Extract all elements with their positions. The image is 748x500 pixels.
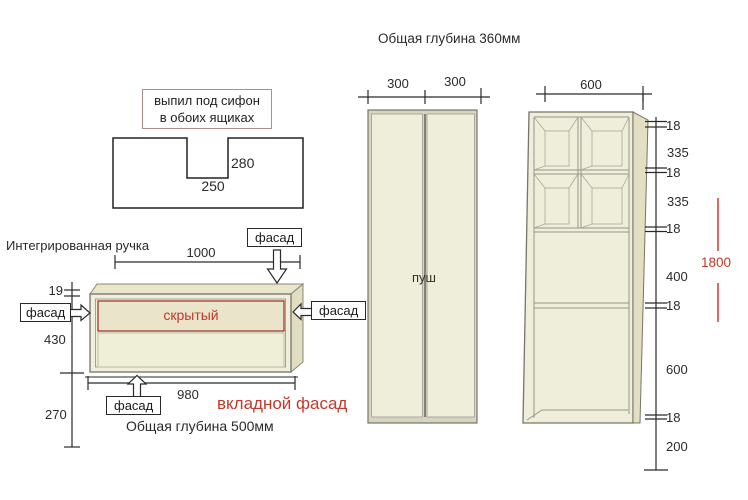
facade-label-right: фасад — [311, 301, 366, 320]
siphon-note-line1: выпил под сифон — [143, 92, 271, 109]
shelf-dim-label: 18 — [666, 119, 680, 133]
shelf-cabinet-drawing — [523, 112, 648, 423]
shelf-dim-label: 400 — [666, 270, 688, 284]
shelf-dim-label: 200 — [666, 440, 688, 454]
tall-door-left-dim: 300 — [381, 77, 415, 91]
facade-label-left: фасад — [20, 303, 71, 322]
facade-label-bottom: фасад — [106, 396, 161, 415]
shelf-dim-label: 600 — [666, 363, 688, 377]
siphon-width-dim: 250 — [196, 179, 230, 194]
hidden-drawer-label: скрытый — [98, 308, 284, 323]
drawer-width-top-dim: 1000 — [180, 246, 222, 260]
siphon-depth-dim: 280 — [231, 156, 254, 171]
shelf-dim-label: 18 — [666, 222, 680, 236]
integrated-handle-label: Интегрированная ручка — [6, 239, 149, 253]
siphon-cutout-drawing — [113, 138, 303, 208]
tall-cabinet-drawing — [368, 110, 477, 423]
tall-door-right-dim: 300 — [438, 75, 472, 89]
drawer-height-dim: 430 — [44, 333, 66, 347]
facade-label-top: фасад — [247, 228, 302, 247]
siphon-note-line2: в обоих ящиках — [143, 109, 271, 126]
shelf-width-dim: 600 — [574, 78, 608, 92]
shelf-dim-label: 18 — [666, 411, 680, 425]
shelf-dim-label: 335 — [667, 195, 689, 209]
drawer-width-bottom-dim: 980 — [170, 388, 206, 402]
drawer-edge-dim: 19 — [45, 284, 63, 298]
drawer-cabinet-drawing — [85, 284, 303, 377]
total-height-dim: 1800 — [701, 256, 731, 271]
drawer-bottom-gap-dim: 270 — [45, 408, 67, 422]
push-label: пуш — [408, 271, 440, 285]
siphon-note-box: выпил под сифон в обоих ящиках — [142, 89, 272, 129]
shelf-dim-label: 335 — [667, 146, 689, 160]
inset-facade-label: вкладной фасад — [217, 395, 347, 414]
depth-500-label: Общая глубина 500мм — [126, 419, 274, 434]
depth-360-title: Общая глубина 360мм — [378, 32, 520, 47]
shelf-dim-label: 18 — [666, 299, 680, 313]
shelf-dim-label: 18 — [666, 166, 680, 180]
furniture-drawing-page: выпил под сифон в обоих ящиках 280 250 И… — [0, 0, 748, 500]
tall-cabinet-dimension-lines — [358, 88, 490, 104]
